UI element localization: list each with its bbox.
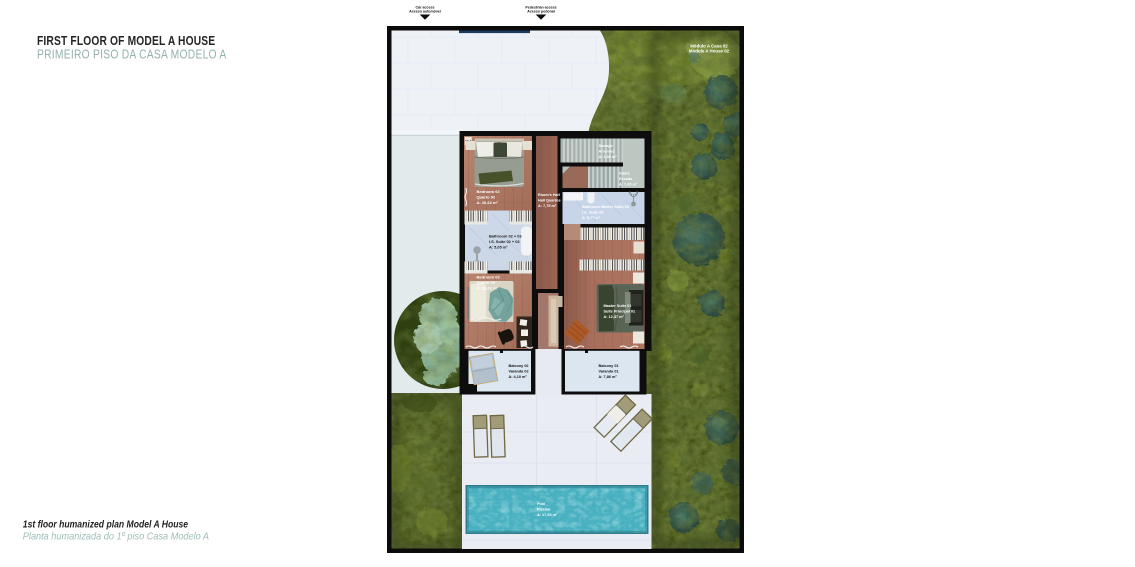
svg-text:A: 10,62 m²: A: 10,62 m² (477, 200, 499, 205)
svg-text:Bathroom 02 + 03: Bathroom 02 + 03 (489, 234, 522, 239)
svg-text:A: 5,77 m²: A: 5,77 m² (582, 216, 601, 220)
svg-text:Module A House 02: Module A House 02 (689, 49, 730, 54)
svg-text:FIRST FLOOR OF MODEL A HOUSE: FIRST FLOOR OF MODEL A HOUSE (37, 35, 215, 48)
svg-text:A: 7,86 m²: A: 7,86 m² (599, 375, 618, 379)
svg-text:Room's Hall: Room's Hall (538, 193, 560, 197)
svg-text:Planta humanizada do 1º piso C: Planta humanizada do 1º piso Casa Modelo… (23, 531, 210, 543)
svg-text:A: 7,45 m²: A: 7,45 m² (619, 183, 638, 187)
svg-text:I.S. Suite 02 + 03: I.S. Suite 02 + 03 (489, 239, 520, 244)
svg-text:Quarto 03: Quarto 03 (477, 280, 496, 285)
svg-text:Bedroom 03: Bedroom 03 (477, 275, 501, 280)
svg-text:Stairs: Stairs (619, 172, 630, 176)
svg-text:Bedroom 02: Bedroom 02 (477, 189, 501, 194)
svg-text:A: 17,60 m²: A: 17,60 m² (537, 513, 558, 517)
svg-text:Varanda 01: Varanda 01 (599, 370, 619, 374)
svg-text:Acesso pedonal: Acesso pedonal (527, 10, 555, 14)
svg-text:PRIMEIRO PISO DA CASA MODELO A: PRIMEIRO PISO DA CASA MODELO A (37, 49, 227, 62)
svg-text:Master Suite 01: Master Suite 01 (604, 304, 632, 308)
svg-text:A: 3,50 m²: A: 3,50 m² (599, 155, 618, 159)
svg-text:1st floor humanized plan Model: 1st floor humanized plan Model A House (23, 519, 189, 531)
svg-text:A: 12,37 m²: A: 12,37 m² (604, 315, 625, 319)
svg-text:Bathroom Master Suite 03: Bathroom Master Suite 03 (582, 205, 629, 209)
svg-text:A: 4,10 m²: A: 4,10 m² (509, 375, 528, 379)
svg-text:Storage: Storage (599, 144, 613, 148)
svg-text:Piscina: Piscina (537, 507, 551, 511)
svg-text:A: 5,05 m²: A: 5,05 m² (489, 245, 508, 250)
svg-text:Balcony 02: Balcony 02 (509, 364, 529, 368)
svg-text:Balcony 01: Balcony 01 (599, 364, 619, 368)
svg-text:Acesso automóvel: Acesso automóvel (409, 10, 441, 14)
svg-text:I.S. Suite 03: I.S. Suite 03 (582, 211, 603, 215)
svg-text:Arrumos: Arrumos (599, 150, 615, 154)
svg-text:A: 7,75 m²: A: 7,75 m² (538, 204, 557, 208)
svg-text:Escada: Escada (619, 177, 633, 181)
svg-text:Pool: Pool (537, 502, 545, 506)
svg-text:Suite Principal 01: Suite Principal 01 (604, 310, 636, 314)
svg-text:A: 12,62 m²: A: 12,62 m² (477, 286, 499, 291)
svg-text:Hall Quartos: Hall Quartos (538, 199, 561, 203)
svg-text:Varanda 02: Varanda 02 (509, 370, 529, 374)
svg-text:Quarto 02: Quarto 02 (477, 195, 496, 200)
